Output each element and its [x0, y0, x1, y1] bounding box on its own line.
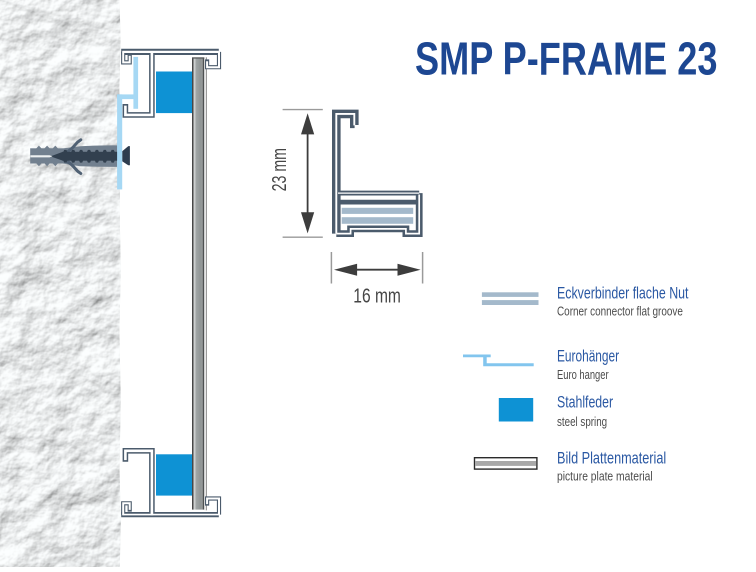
svg-text:16 mm: 16 mm — [353, 285, 401, 308]
svg-text:Eurohänger: Eurohänger — [557, 348, 620, 366]
svg-text:Bild Plattenmaterial: Bild Plattenmaterial — [557, 449, 666, 467]
svg-text:SMP P-FRAME 23: SMP P-FRAME 23 — [415, 32, 718, 84]
svg-text:picture plate material: picture plate material — [557, 468, 653, 483]
svg-text:steel spring: steel spring — [557, 414, 607, 429]
svg-text:23 mm: 23 mm — [268, 148, 291, 191]
svg-text:Euro hanger: Euro hanger — [557, 367, 609, 382]
svg-text:Corner connector flat groove: Corner connector flat groove — [557, 304, 683, 319]
svg-text:Stahlfeder: Stahlfeder — [557, 393, 614, 411]
svg-text:Eckverbinder flache Nut: Eckverbinder flache Nut — [557, 285, 689, 303]
